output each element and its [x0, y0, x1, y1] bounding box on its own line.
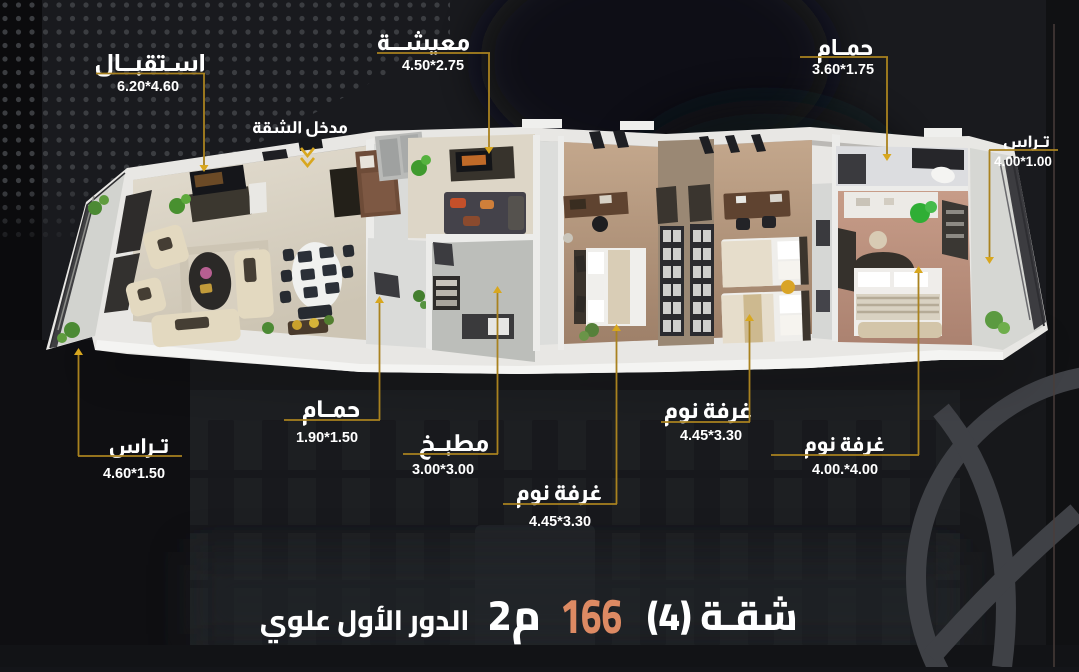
svg-text:6.20*4.60: 6.20*4.60 [117, 79, 179, 95]
svg-text:3.00*3.00: 3.00*3.00 [412, 462, 474, 478]
svg-text:4.50*2.75: 4.50*2.75 [402, 58, 464, 74]
svg-text:4.00.*4.00: 4.00.*4.00 [812, 462, 878, 478]
svg-text:4.00*1.00: 4.00*1.00 [994, 154, 1052, 169]
svg-text:4.60*1.50: 4.60*1.50 [103, 466, 165, 482]
svg-text:4.45*3.30: 4.45*3.30 [529, 514, 591, 530]
svg-text:3.60*1.75: 3.60*1.75 [812, 62, 874, 78]
svg-text:1.90*1.50: 1.90*1.50 [296, 430, 358, 446]
svg-text:4.45*3.30: 4.45*3.30 [680, 428, 742, 444]
